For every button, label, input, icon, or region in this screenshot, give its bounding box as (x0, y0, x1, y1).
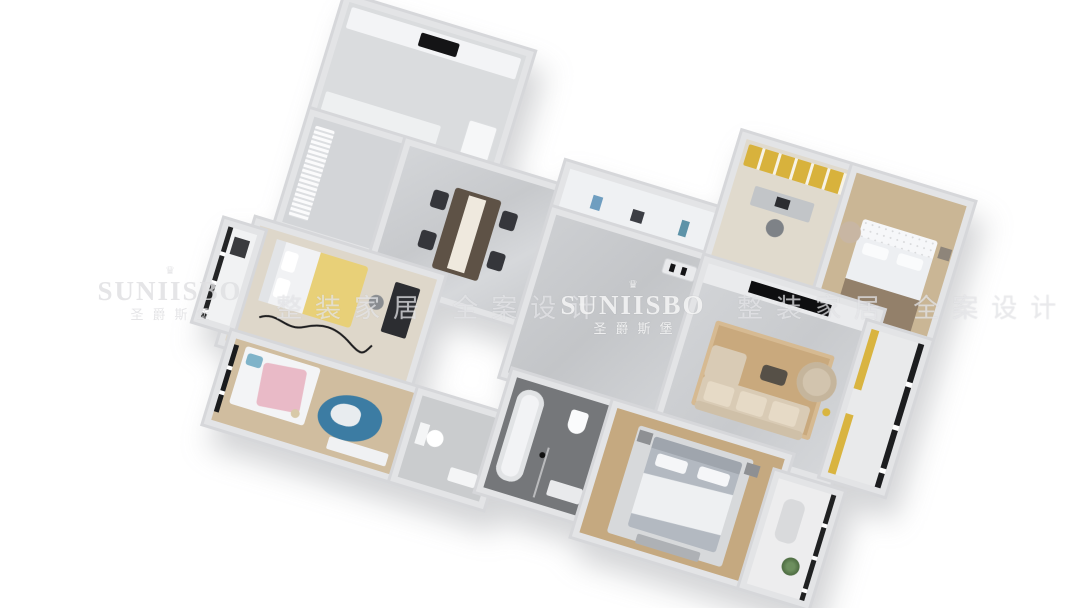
toilet (565, 409, 589, 436)
dining-chair (417, 229, 438, 251)
pillow (245, 353, 264, 369)
floor-lamp (821, 407, 831, 417)
pillow (280, 250, 299, 273)
cabinet-decor (678, 220, 690, 238)
watermark-logo-left: ♛ SUNIISBO 圣爵斯堡 (85, 266, 255, 324)
sink (447, 467, 478, 489)
brand-name: SUNIISBO (548, 290, 718, 320)
brand-name-chinese: 圣爵斯堡 (85, 306, 255, 324)
lounge-chair (773, 497, 807, 546)
blue-rug (312, 387, 387, 450)
brand-name: SUNIISBO (85, 276, 255, 306)
bath-vanity (546, 480, 583, 505)
bathtub (493, 387, 547, 485)
pink-blanket (256, 362, 308, 414)
watermark-logo-center: ♛ SUNIISBO 圣爵斯堡 (548, 280, 718, 338)
balcony-window (875, 343, 925, 488)
pillow (896, 253, 924, 272)
table-runner (447, 195, 486, 273)
nightstand (937, 246, 952, 261)
cabinet-decor (630, 209, 645, 224)
pillow (861, 242, 889, 261)
vanity-nook (230, 237, 251, 259)
entry-wardrobe (288, 125, 335, 221)
study-chair (764, 217, 786, 239)
dining-chair (498, 210, 519, 232)
cabinet-decor (590, 195, 604, 211)
balcony-window (799, 494, 836, 601)
brand-name-chinese: 圣爵斯堡 (548, 320, 718, 338)
potted-plant (779, 555, 801, 577)
crown-icon: ♛ (85, 266, 255, 276)
console-table (662, 259, 697, 282)
watermark-tagline-right: 整装家居 全案设计 (737, 288, 1069, 325)
fridge (459, 120, 497, 165)
floorplan-render: ♛ SUNIISBO 圣爵斯堡 整装家居 全案设计 ♛ SUNIISBO 圣爵斯… (0, 0, 1080, 608)
dining-chair (429, 189, 450, 211)
dining-chair (486, 250, 507, 272)
crown-icon: ♛ (548, 280, 718, 290)
